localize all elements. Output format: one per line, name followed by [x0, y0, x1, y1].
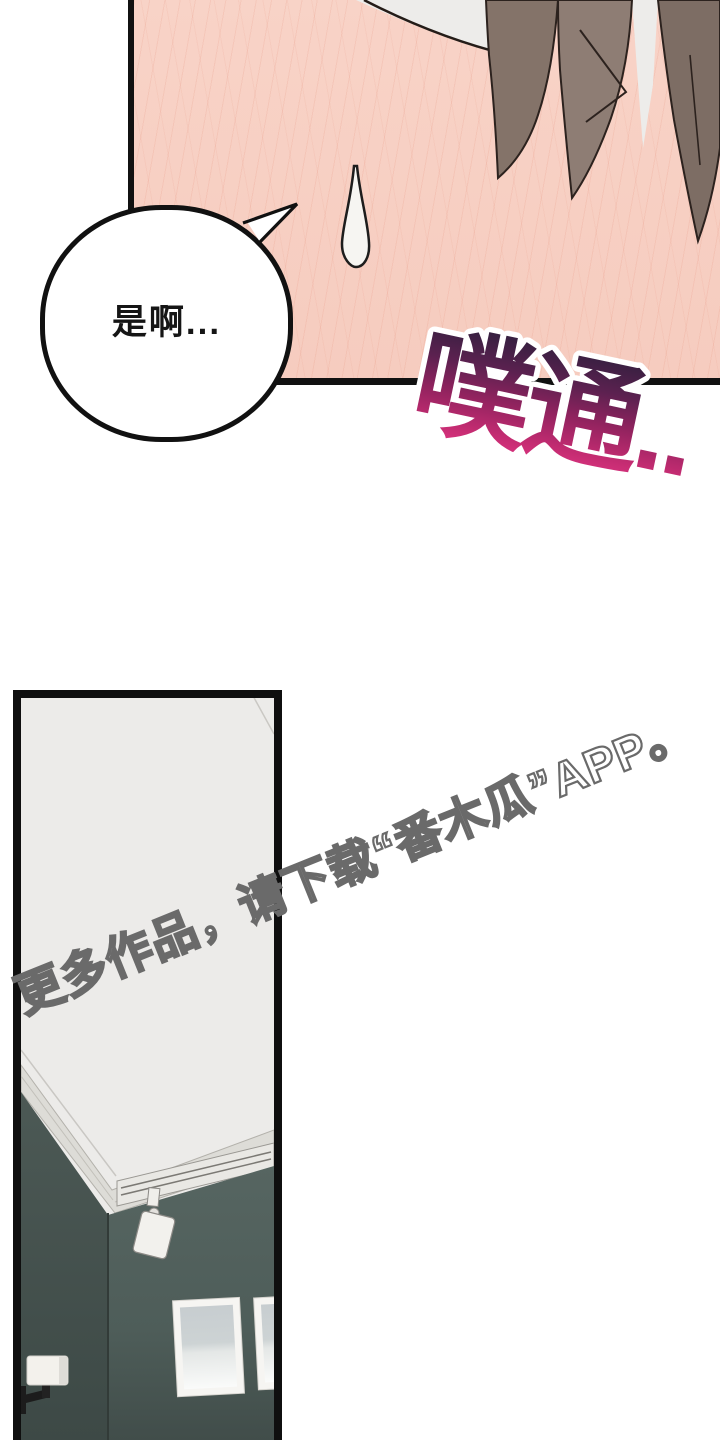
frame-picture [180, 1305, 237, 1390]
panel-room-interior [13, 690, 282, 1440]
sfx-text: 噗通.. [403, 314, 706, 502]
speech-bubble-tail [230, 193, 310, 273]
sfx-heartbeat: 噗通.. [392, 310, 720, 505]
sconce-shade-shadow [59, 1357, 67, 1384]
hair-strand-right [658, 0, 720, 241]
speech-bubble-text: 是啊... [112, 294, 221, 345]
hair-strand-left [486, 0, 558, 178]
room-art [21, 698, 274, 1440]
comic-page: 是啊... 噗通.. [0, 0, 720, 1440]
spotlight-mount [147, 1188, 160, 1207]
hair-strand-center [558, 0, 632, 198]
background-strip [632, 0, 658, 148]
picture-frame-1 [173, 1297, 245, 1396]
sweat-drop-icon [342, 166, 369, 267]
